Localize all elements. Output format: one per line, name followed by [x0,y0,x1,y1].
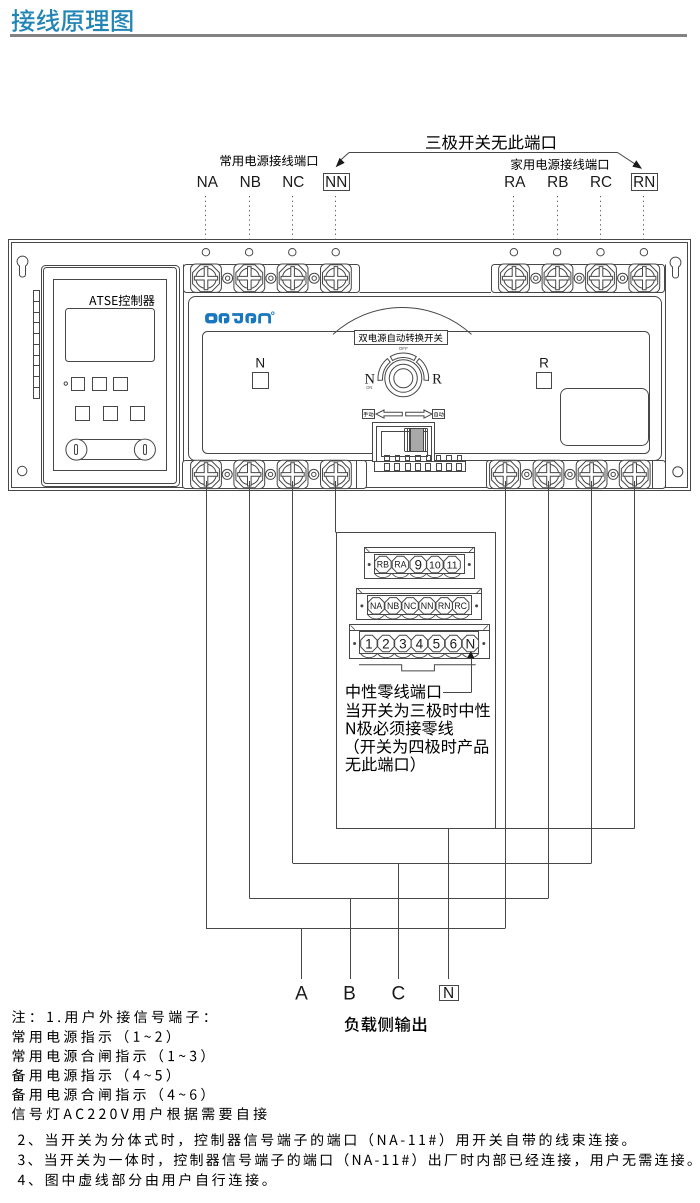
svg-text:C: C [392,984,406,1005]
svg-text:NC: NC [404,601,417,611]
svg-text:A: A [295,984,308,1005]
svg-text:RB: RB [377,560,389,570]
svg-text:10: 10 [429,559,441,571]
svg-text:NB: NB [387,601,399,611]
svg-text:RA: RA [504,174,526,191]
svg-text:4: 4 [416,636,424,651]
svg-text:1: 1 [365,636,373,651]
svg-text:RC: RC [454,601,467,611]
svg-text:NB: NB [240,174,261,191]
svg-text:6: 6 [450,636,458,651]
svg-text:2: 2 [382,636,390,651]
svg-text:N: N [443,985,454,1002]
svg-text:B: B [343,984,356,1005]
svg-text:NN: NN [325,174,347,191]
svg-text:RA: RA [394,560,406,570]
svg-text:5: 5 [433,636,441,651]
svg-text:RC: RC [590,174,612,191]
svg-text:R: R [539,356,549,371]
svg-text:N: N [466,636,476,651]
svg-text:RB: RB [547,174,568,191]
svg-text:OFF: OFF [399,346,408,351]
svg-text:N: N [255,356,265,371]
svg-text:NC: NC [282,174,304,191]
svg-text:RN: RN [438,601,451,611]
svg-text:NN: NN [421,601,434,611]
svg-text:9: 9 [414,557,422,572]
svg-text:R: R [432,372,442,388]
svg-text:RN: RN [633,174,655,191]
svg-text:ON: ON [366,385,372,390]
svg-text:3: 3 [399,636,407,651]
svg-text:11: 11 [447,559,458,571]
svg-text:NA: NA [197,174,219,191]
svg-text:NA: NA [370,601,382,611]
